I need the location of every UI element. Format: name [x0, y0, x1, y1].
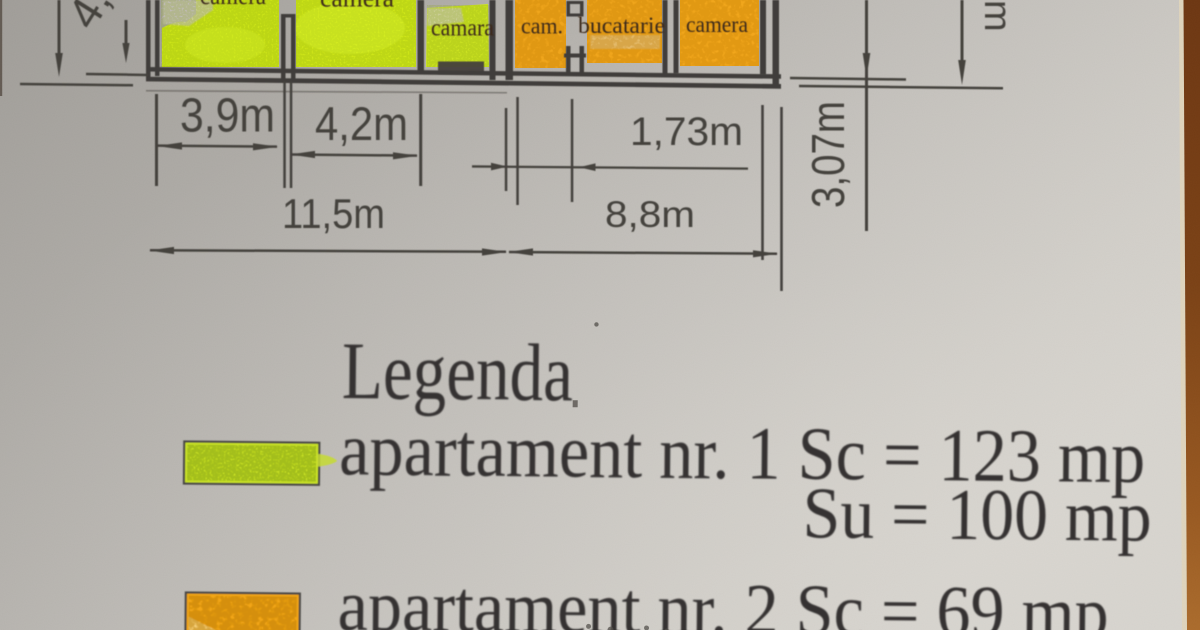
svg-text:Legenda: Legenda — [342, 325, 574, 418]
svg-text:camera: camera — [320, 0, 394, 13]
svg-text:3,9m: 3,9m — [180, 90, 275, 143]
svg-text:3,07m: 3,07m — [802, 101, 854, 208]
svg-text:m: m — [976, 0, 1018, 32]
svg-text:camara: camara — [431, 16, 494, 42]
svg-text:11,5m: 11,5m — [282, 190, 385, 237]
svg-text:1,73m: 1,73m — [630, 110, 743, 154]
svg-text:apartament nr. 2 Sc = 69 mp: apartament nr. 2 Sc = 69 mp — [337, 565, 1109, 630]
svg-text:camera: camera — [200, 0, 266, 10]
svg-text:cam.: cam. — [521, 14, 563, 39]
svg-text:bucatarie: bucatarie — [578, 13, 665, 39]
svg-text:4,2m: 4,2m — [315, 97, 408, 150]
svg-text:camera: camera — [686, 12, 748, 37]
svg-text:Su = 100 mp: Su = 100 mp — [802, 472, 1152, 556]
svg-text:8,8m: 8,8m — [605, 194, 695, 235]
